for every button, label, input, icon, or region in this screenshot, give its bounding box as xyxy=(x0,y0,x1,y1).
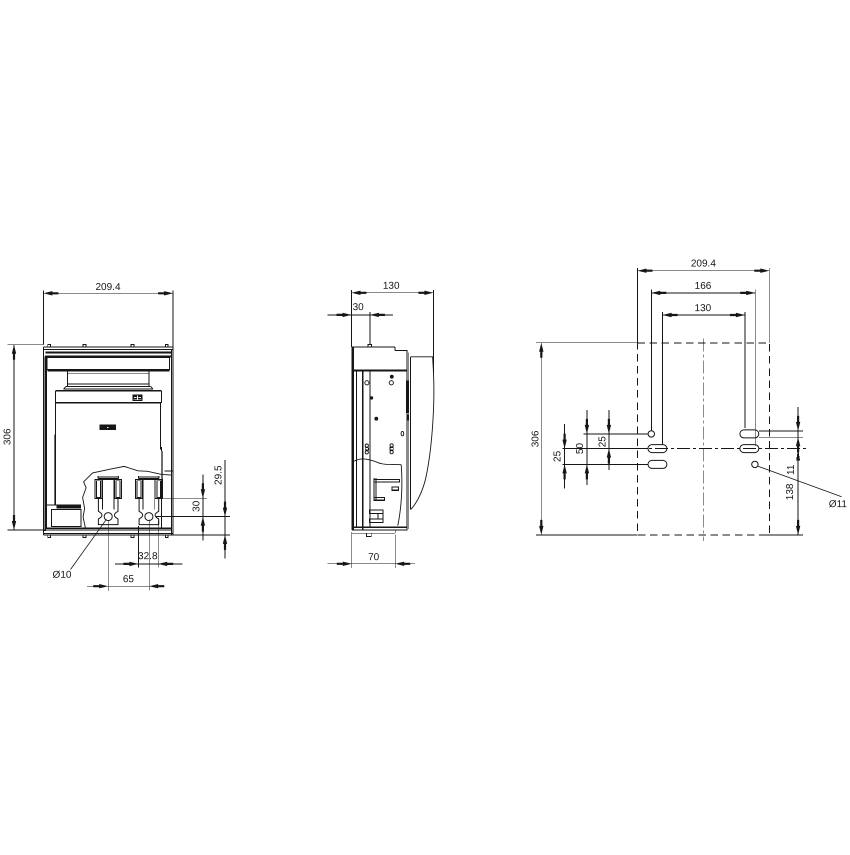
svg-text:30: 30 xyxy=(353,302,365,313)
svg-text:138: 138 xyxy=(785,483,796,500)
svg-text:32.8: 32.8 xyxy=(138,551,158,562)
svg-text:306: 306 xyxy=(3,428,14,445)
svg-text:Ø10: Ø10 xyxy=(53,570,72,581)
svg-text:30: 30 xyxy=(192,500,203,512)
svg-text:65: 65 xyxy=(123,574,135,585)
svg-text:70: 70 xyxy=(368,552,380,563)
svg-text:11: 11 xyxy=(786,464,797,475)
svg-text:Ø11: Ø11 xyxy=(829,499,848,510)
svg-text:29.5: 29.5 xyxy=(213,465,224,485)
svg-text:209.4: 209.4 xyxy=(691,258,716,269)
svg-text:166: 166 xyxy=(695,281,712,292)
svg-text:50: 50 xyxy=(575,443,586,455)
svg-text:25: 25 xyxy=(597,436,608,448)
svg-text:130: 130 xyxy=(383,281,400,292)
svg-text:25: 25 xyxy=(552,450,563,462)
svg-text:306: 306 xyxy=(530,430,541,447)
svg-text:130: 130 xyxy=(695,303,712,314)
svg-text:209.4: 209.4 xyxy=(95,282,120,293)
